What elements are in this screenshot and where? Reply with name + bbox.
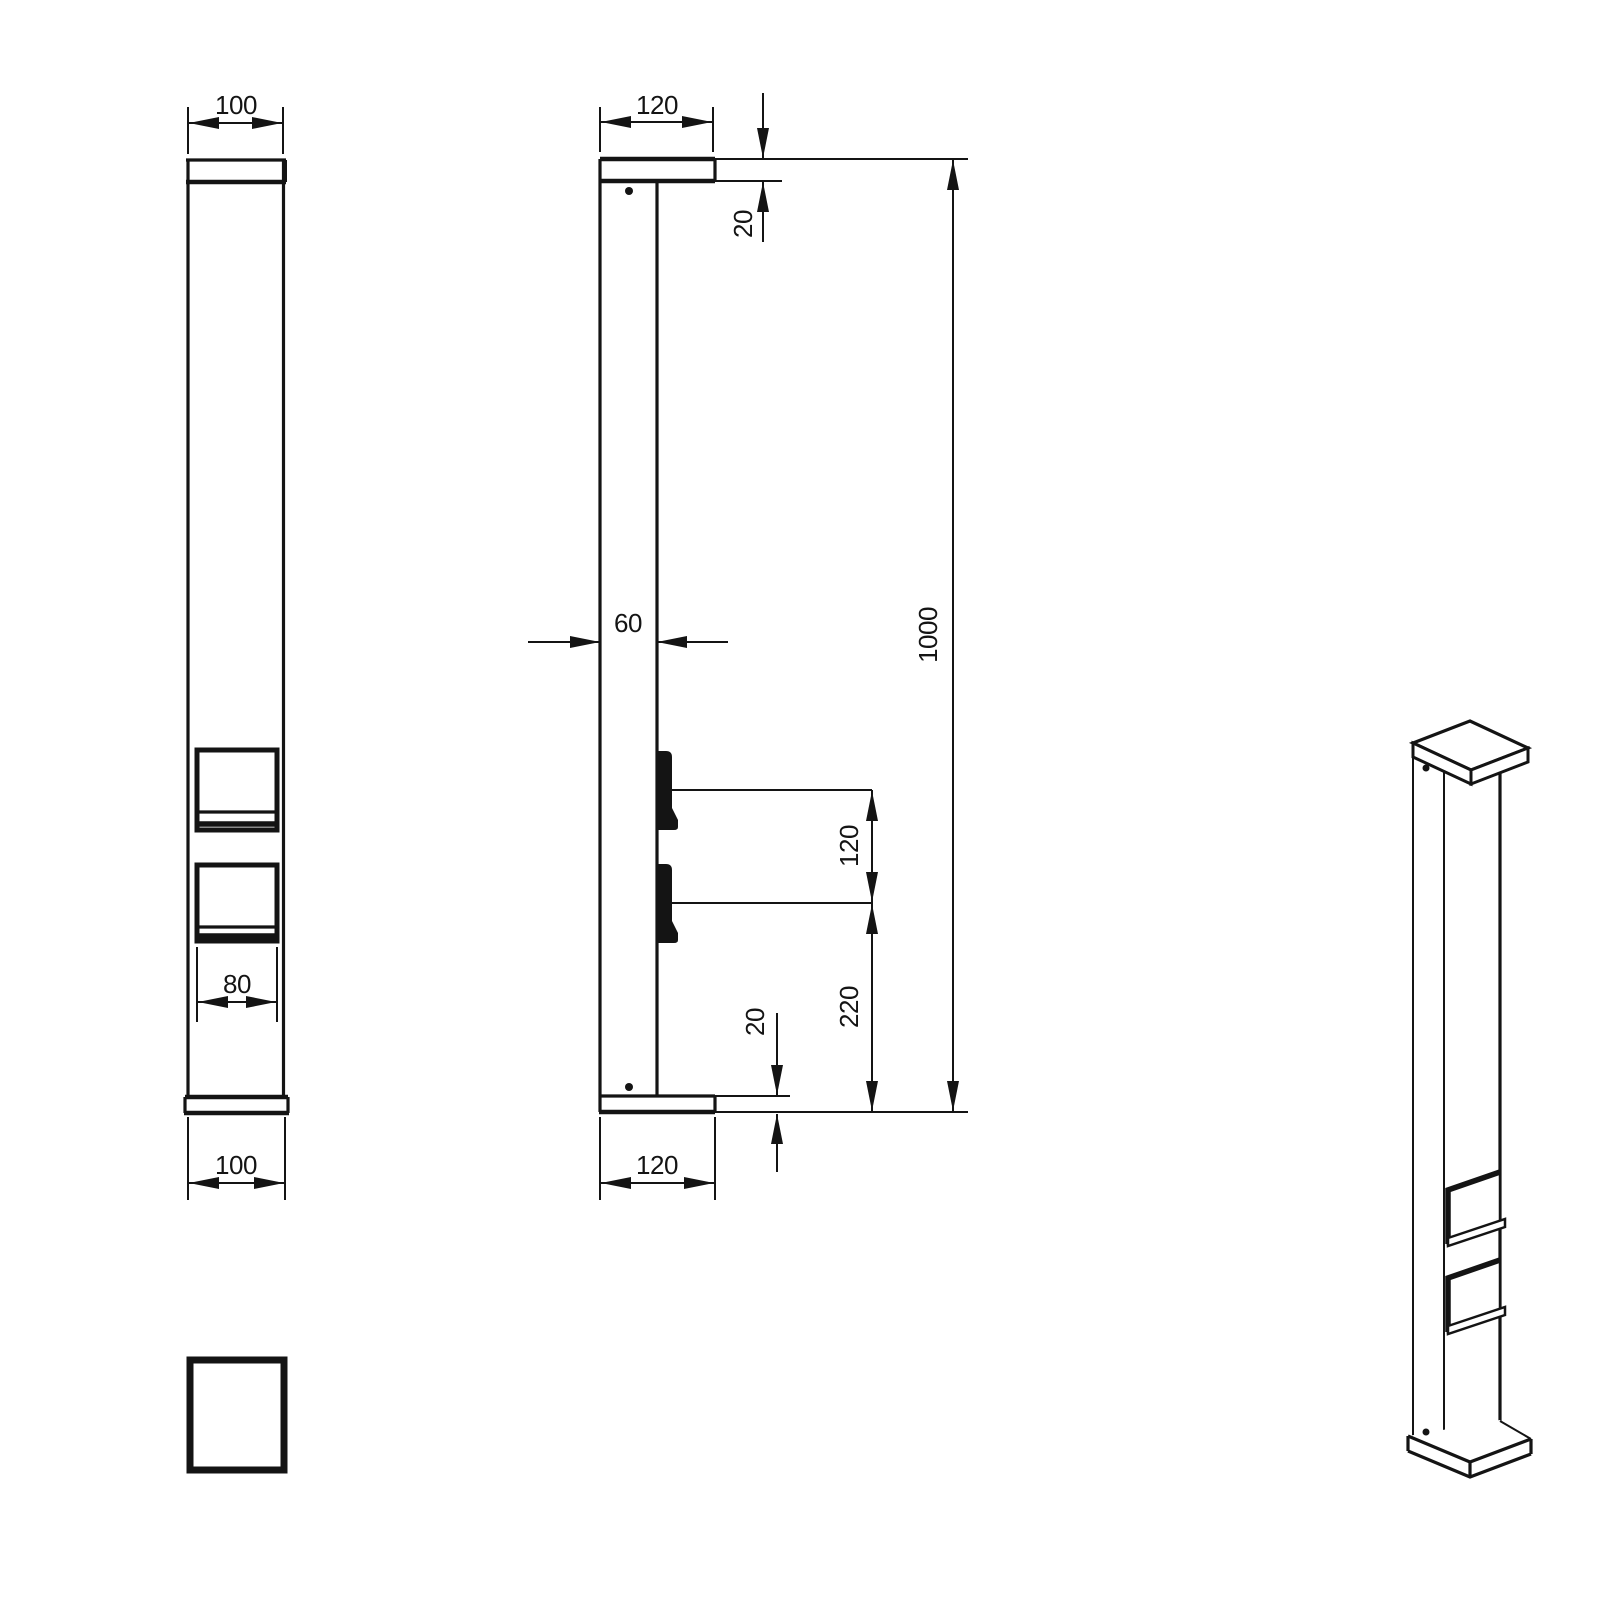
screw-dot-bottom <box>625 1083 633 1091</box>
dim-side-socket-spacing: 120 <box>834 790 878 903</box>
arrowhead <box>684 1177 714 1189</box>
dim-side-total-height: 1000 <box>913 159 959 1112</box>
dim-side-cap-thickness: 20 <box>728 93 769 242</box>
screw-dot-top <box>625 187 633 195</box>
isometric-view <box>1408 721 1531 1479</box>
arrowhead <box>866 872 878 902</box>
side-view: 120 20 60 120 <box>528 90 968 1200</box>
arrowhead <box>601 1177 631 1189</box>
screw-dot-top-iso <box>1423 765 1430 772</box>
front-view: 100 80 100 <box>184 90 289 1200</box>
dimension-label: 20 <box>728 210 758 238</box>
dim-side-post-depth: 60 <box>528 608 728 648</box>
technical-drawing-svg: 100 80 100 <box>0 0 1600 1600</box>
dim-front-top-width: 100 <box>188 90 283 154</box>
plan-view <box>190 1360 284 1470</box>
dim-side-socket-base-offset: 220 <box>834 903 878 1112</box>
dimension-label: 20 <box>740 1008 770 1036</box>
dimension-label: 80 <box>223 969 251 999</box>
arrowhead <box>771 1065 783 1095</box>
dim-side-cap-depth: 120 <box>600 90 713 152</box>
dimension-label: 60 <box>614 608 642 638</box>
dimension-label: 120 <box>636 90 678 120</box>
cap-iso <box>1413 721 1528 784</box>
arrowhead <box>757 128 769 158</box>
dim-front-bottom-width: 100 <box>188 1117 285 1200</box>
dimension-label: 100 <box>215 1150 257 1180</box>
arrowhead <box>947 160 959 190</box>
upper-socket-frame <box>197 750 277 830</box>
dimension-label: 100 <box>215 90 257 120</box>
screw-dot-bottom-iso <box>1423 1429 1430 1436</box>
arrowhead <box>866 791 878 821</box>
arrowhead <box>947 1081 959 1111</box>
arrowhead <box>866 1081 878 1111</box>
arrowhead <box>757 182 769 212</box>
arrowhead <box>657 636 687 648</box>
arrowhead <box>866 904 878 934</box>
dimension-label: 120 <box>834 825 864 867</box>
lower-socket-frame <box>197 865 277 941</box>
dimension-label: 120 <box>636 1150 678 1180</box>
dim-front-socket-width: 80 <box>197 947 277 1022</box>
pole-cross-section <box>190 1360 284 1470</box>
lower-socket-front <box>197 865 277 941</box>
dimension-label: 220 <box>834 986 864 1028</box>
dim-side-base-depth: 120 <box>600 1117 715 1200</box>
arrowhead <box>570 636 600 648</box>
dim-side-base-thickness: 20 <box>740 1008 783 1172</box>
arrowhead <box>771 1114 783 1144</box>
arrowhead <box>254 1177 284 1189</box>
drawing-sheet: 100 80 100 <box>0 0 1600 1600</box>
arrowhead <box>682 116 712 128</box>
lower-socket-iso <box>1448 1260 1505 1334</box>
upper-socket-front <box>197 750 277 830</box>
arrowhead <box>601 116 631 128</box>
dimension-label: 1000 <box>913 607 943 663</box>
upper-socket-iso <box>1448 1172 1505 1246</box>
